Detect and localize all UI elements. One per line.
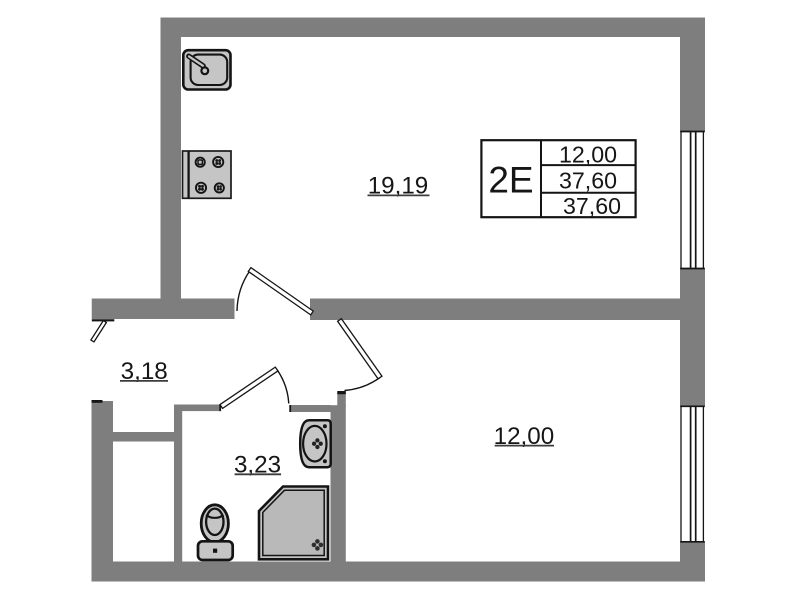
svg-text:12,00: 12,00	[559, 141, 617, 167]
svg-text:37,60: 37,60	[559, 168, 617, 194]
svg-text:2E: 2E	[488, 160, 533, 201]
svg-text:37,60: 37,60	[563, 193, 621, 219]
